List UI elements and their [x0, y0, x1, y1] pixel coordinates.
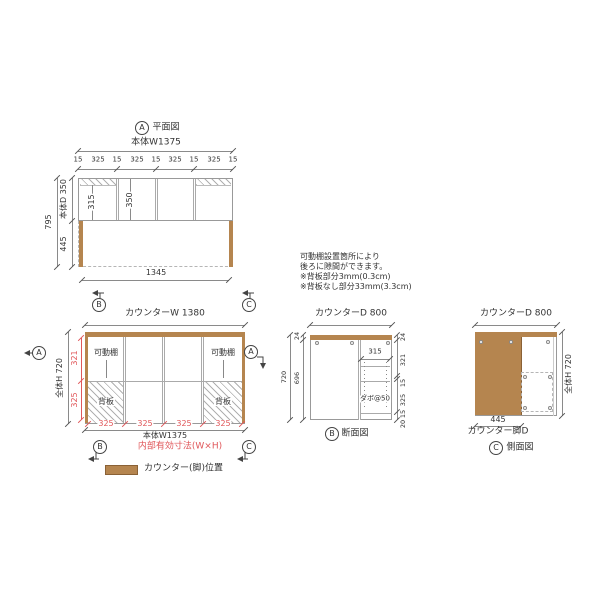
- dim-line: [475, 325, 557, 326]
- front-bottom-dim: 325: [175, 420, 192, 428]
- front-lower-inner-height: 325: [71, 391, 79, 408]
- dim-line: [562, 332, 563, 416]
- side-height-label: 全体H 720: [565, 353, 573, 395]
- tick: [226, 277, 232, 283]
- shelf-pin-holes: [386, 362, 387, 410]
- dowel-hole: [386, 341, 390, 345]
- dim-line: [361, 359, 390, 360]
- front-upper-inner-height: 321: [71, 349, 79, 366]
- plan-back-panel-1: [80, 179, 116, 186]
- side-leg-label: カウンター脚D: [467, 428, 530, 437]
- plan-dim: 325: [167, 157, 182, 164]
- front-bottom-dim: 325: [136, 420, 153, 428]
- tick: [230, 166, 236, 172]
- dim-line: [82, 280, 229, 281]
- side-depth-label: カウンターD 800: [479, 310, 553, 319]
- tick: [242, 322, 248, 328]
- tick: [559, 413, 565, 419]
- tick: [300, 417, 306, 423]
- plan-dim: 15: [189, 157, 200, 164]
- front-marker-a-left: A: [32, 346, 46, 360]
- plan-total-depth: 795: [45, 213, 53, 230]
- section-total-height: 720: [281, 370, 288, 384]
- plan-counter-outline: [78, 221, 233, 267]
- section-right-dim: 20: [400, 419, 407, 429]
- front-back-panel-label: 背板: [97, 398, 115, 406]
- section-depth-label: カウンターD 800: [314, 310, 388, 319]
- shelf-gap-note: 可動棚設置箇所により 後ろに隙間ができます。 ※背板部分3mm(0.3cm) ※…: [300, 252, 412, 292]
- dowel-hole: [509, 340, 513, 344]
- side-leg-panel: [475, 337, 522, 415]
- front-shelf-label: 可動棚: [210, 349, 236, 357]
- section-body-height: 696: [294, 371, 301, 385]
- plan-marker-b: B: [92, 298, 106, 312]
- note-line: ※背板部分3mm(0.3cm): [300, 272, 412, 282]
- plan-dim: 325: [206, 157, 221, 164]
- tick: [78, 417, 84, 423]
- section-arrow-icon: [86, 452, 102, 464]
- plan-dim: 15: [228, 157, 239, 164]
- plan-counter-leg-left: [79, 221, 83, 267]
- section-dowel-label: ダボ@50: [359, 396, 391, 403]
- plan-bottom-dim: 1345: [145, 269, 167, 277]
- section-right-dim: 24: [400, 332, 407, 342]
- plan-dim: 325: [90, 157, 105, 164]
- section-right-dim: 325: [400, 393, 407, 407]
- note-line: ※背板なし部分33mm(3.3cm): [300, 282, 412, 292]
- legend-label: カウンター(脚)位置: [143, 465, 224, 474]
- section-right-dim: 15: [400, 409, 407, 419]
- front-partition: [162, 337, 165, 423]
- dowel-hole: [546, 340, 550, 344]
- dim-line: [57, 178, 58, 267]
- plan-dim: 15: [112, 157, 123, 164]
- dowel-hole: [479, 340, 483, 344]
- furniture-dimension-drawing: A 平面図 本体W1375 15 325 15 325 15 325 15 32…: [0, 0, 600, 600]
- plan-dim: 325: [129, 157, 144, 164]
- tick: [287, 417, 293, 423]
- tick: [554, 322, 560, 328]
- section-badge-icon: B: [325, 427, 339, 441]
- section-inner-width: 315: [367, 349, 382, 356]
- plan-dim: 15: [151, 157, 162, 164]
- front-counter-width-label: カウンターW 1380: [124, 310, 206, 319]
- plan-depth-label: 本体D 350: [60, 178, 68, 220]
- tick: [69, 264, 75, 270]
- section-title: 断面図: [340, 430, 369, 439]
- plan-back-panel-4: [196, 179, 231, 186]
- screw-hole: [523, 375, 527, 379]
- screw-hole: [548, 375, 552, 379]
- section-base-line: [361, 413, 392, 414]
- section-countertop: [310, 335, 392, 340]
- plan-width-label: 本体W1375: [130, 139, 182, 148]
- shelf-pin-holes: [364, 362, 365, 410]
- section-right-dim: 15: [400, 378, 407, 388]
- plan-badge-icon: A: [135, 121, 149, 135]
- front-inner-note: 内部有効寸法(W×H): [137, 443, 223, 452]
- section-arrow-icon: [255, 355, 269, 370]
- plan-partition: [155, 179, 158, 220]
- plan-partition: [193, 179, 196, 220]
- leader-line: [223, 360, 224, 378]
- side-leg-depth: 445: [489, 416, 506, 424]
- front-body-width-label: 本体W1375: [142, 432, 188, 440]
- tick: [242, 427, 248, 433]
- tick: [230, 148, 236, 154]
- plan-inner-dim-315: 315: [88, 193, 96, 210]
- screw-hole: [548, 406, 552, 410]
- dim-line: [290, 335, 291, 420]
- section-top-thickness: 24: [294, 331, 301, 341]
- plan-partition: [116, 179, 119, 220]
- dim-line: [303, 335, 304, 420]
- note-line: 後ろに隙間ができます。: [300, 262, 412, 272]
- section-partition: [358, 340, 361, 420]
- dim-line: [78, 151, 233, 152]
- legend-swatch: [105, 465, 138, 475]
- tick: [65, 421, 71, 427]
- note-line: 可動棚設置箇所により: [300, 252, 412, 262]
- plan-marker-c: C: [242, 298, 256, 312]
- plan-dim: 15: [73, 157, 84, 164]
- front-bottom-dim: 325: [214, 420, 231, 428]
- side-title: 側面図: [505, 444, 534, 453]
- dim-line: [68, 332, 69, 424]
- side-back-panel-line: [553, 337, 554, 416]
- dowel-hole: [315, 341, 319, 345]
- dowel-hole: [350, 341, 354, 345]
- section-arrow-icon: [235, 452, 251, 464]
- side-badge-icon: C: [489, 441, 503, 455]
- front-bottom-dim: 325: [97, 420, 114, 428]
- front-height-label: 全体H 720: [56, 357, 64, 399]
- tick: [54, 264, 60, 270]
- dim-line: [310, 325, 392, 326]
- tick: [389, 322, 395, 328]
- front-countertop: [85, 332, 245, 337]
- plan-front-depth: 445: [60, 235, 68, 252]
- leader-line: [106, 360, 107, 378]
- front-back-panel-label: 背板: [214, 398, 232, 406]
- plan-title: 平面図: [151, 124, 180, 133]
- front-partition: [123, 337, 126, 423]
- section-right-dim: 321: [400, 353, 407, 367]
- plan-inner-dim-350: 350: [126, 191, 134, 208]
- front-shelf-label: 可動棚: [93, 349, 119, 357]
- dim-line: [85, 325, 245, 326]
- dim-line: [72, 178, 73, 267]
- screw-hole: [523, 406, 527, 410]
- plan-counter-leg-right: [229, 221, 233, 267]
